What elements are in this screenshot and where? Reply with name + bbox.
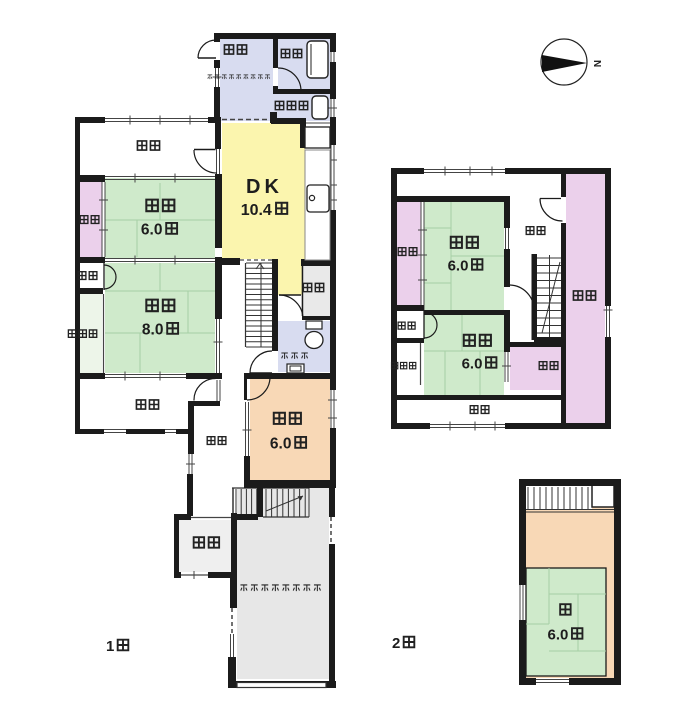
svg-text:DK: DK bbox=[246, 176, 283, 198]
svg-text:6.0: 6.0 bbox=[270, 436, 292, 453]
svg-text:10.4: 10.4 bbox=[241, 202, 272, 219]
svg-text:8.0: 8.0 bbox=[142, 322, 164, 339]
svg-text:6.0: 6.0 bbox=[548, 626, 569, 643]
svg-text:6.0: 6.0 bbox=[448, 257, 469, 274]
svg-text:2: 2 bbox=[392, 635, 400, 652]
svg-text:N: N bbox=[591, 60, 602, 67]
svg-text:6.0: 6.0 bbox=[141, 222, 163, 239]
svg-text:1: 1 bbox=[106, 638, 114, 655]
svg-text:6.0: 6.0 bbox=[462, 355, 483, 372]
